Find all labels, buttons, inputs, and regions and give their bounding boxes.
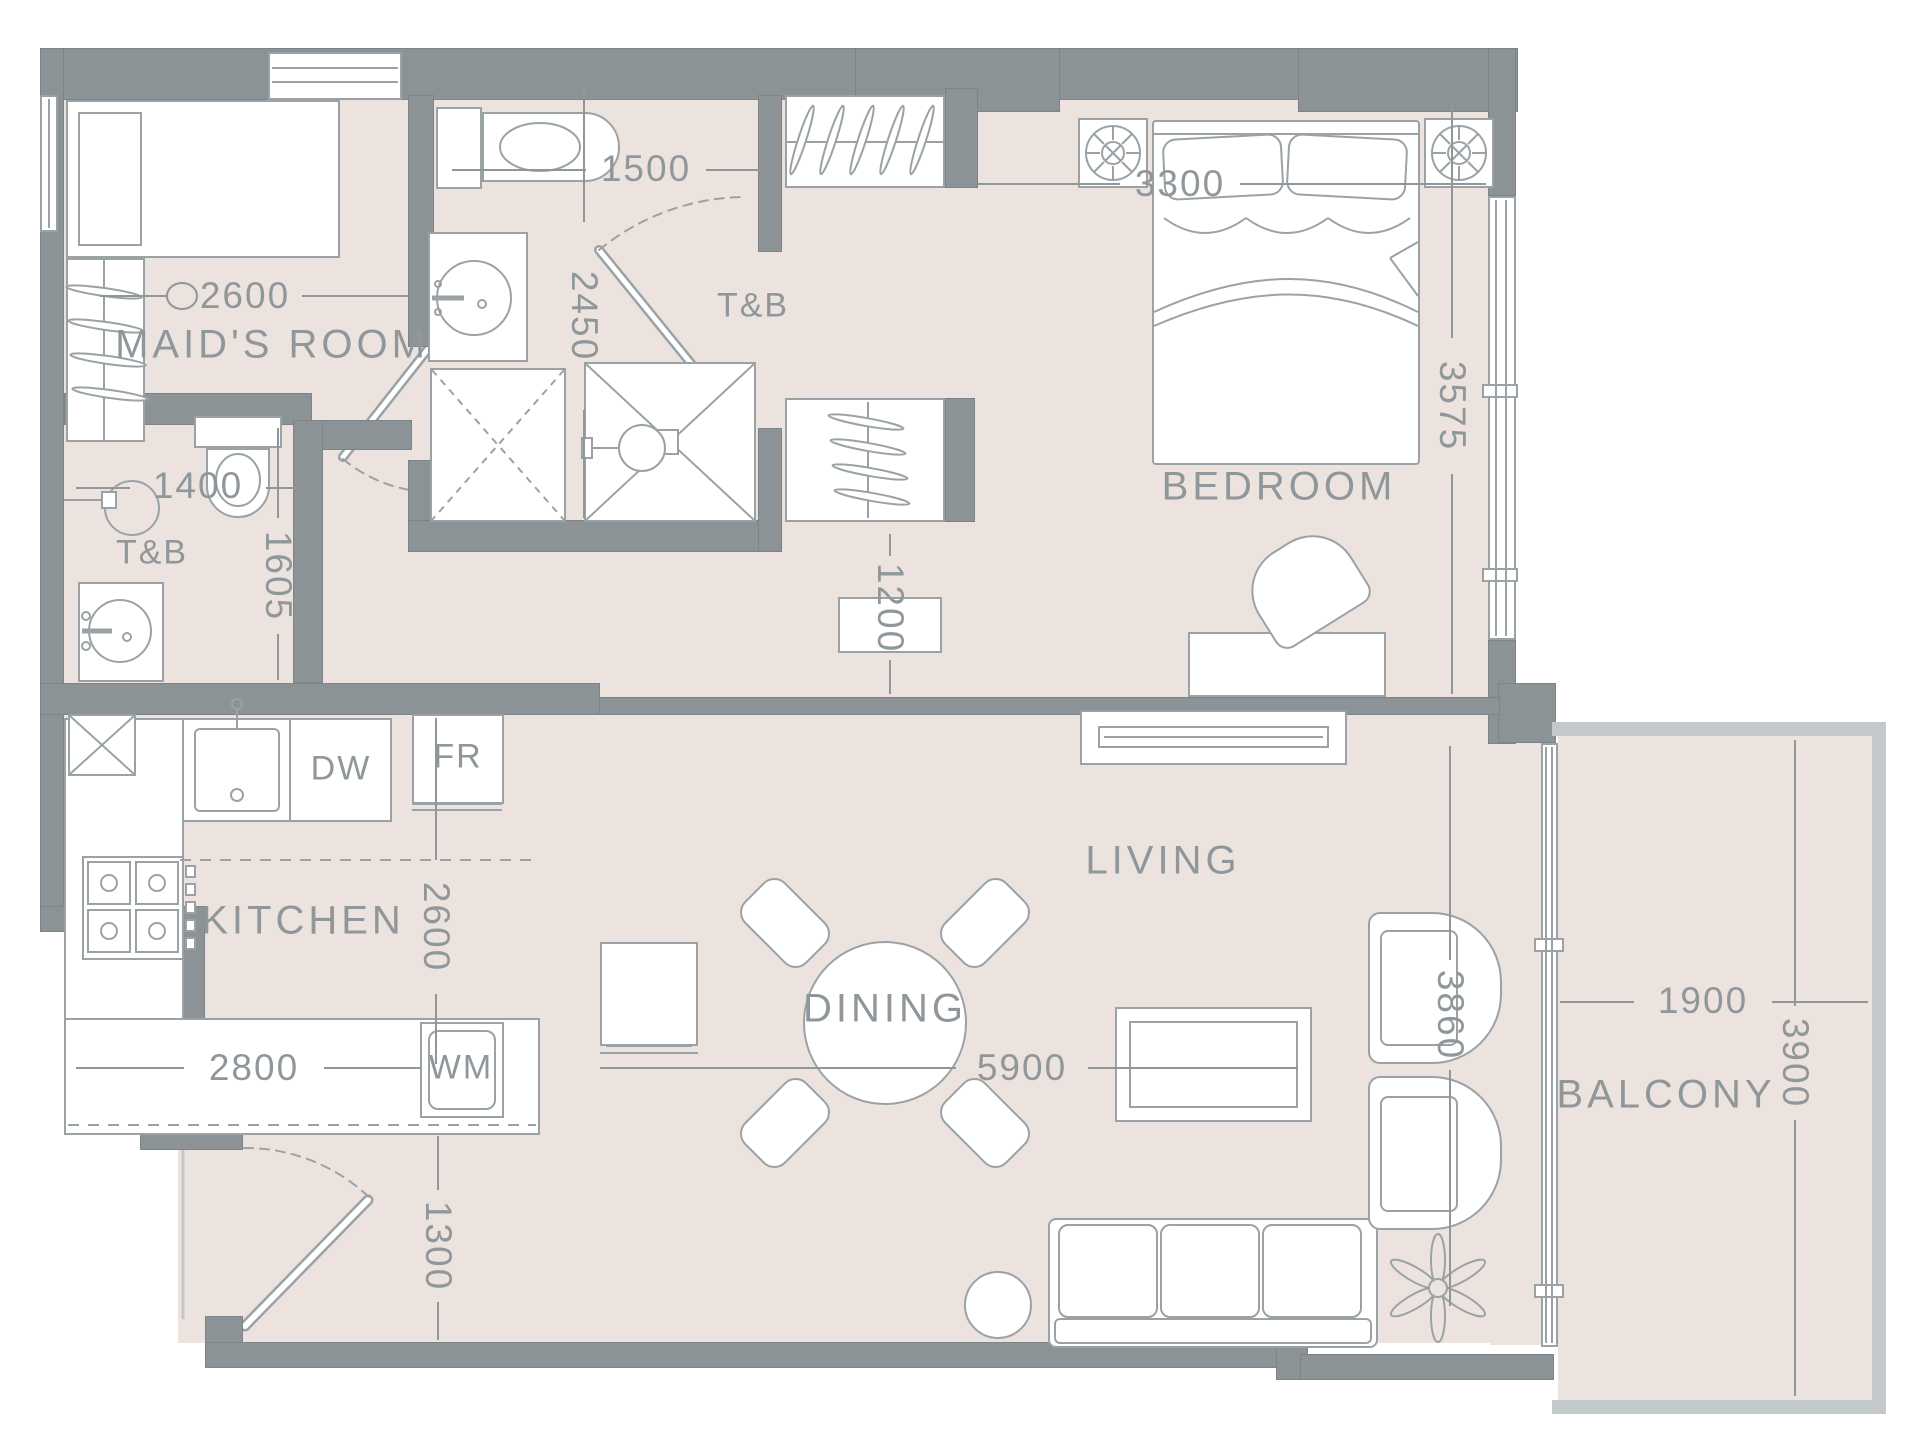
nightstand-right [1424, 118, 1494, 188]
dim-balcony-width: 1900 [1658, 980, 1748, 1022]
balcony-floor [1558, 736, 1872, 1400]
hall-closet [785, 95, 945, 188]
tb-center-shower [584, 362, 756, 522]
armchair-2-cushion [1380, 1096, 1458, 1212]
balcony-label: BALCONY [1556, 1073, 1775, 1118]
tb-center-duct [430, 368, 566, 522]
dim-bedroom-width: 3300 [1135, 163, 1225, 205]
maids-room-label: MAID'S ROOM [115, 323, 429, 368]
dim-tb-center-width: 1500 [601, 148, 691, 190]
balcony-wall-bottom [1552, 1400, 1886, 1414]
wall-closet-a-column [945, 88, 978, 188]
sofa-back [1054, 1318, 1372, 1344]
balcony-window-wall [1541, 743, 1558, 1347]
living-floor-strip [1490, 742, 1541, 1345]
tb-center-label: T&B [717, 287, 789, 326]
coffee-table-inner [1129, 1021, 1298, 1108]
wall-tb-center-right-lower [758, 428, 782, 552]
wall-bottom-right [1300, 1354, 1554, 1380]
dim-tb-left-depth: 1605 [257, 531, 299, 621]
sofa-cushion-3 [1262, 1224, 1362, 1318]
tb-left-label: T&B [116, 534, 188, 573]
wall-top-block-b [1298, 48, 1518, 112]
dim-maids-width: 2600 [200, 275, 290, 317]
kitchen-label: KITCHEN [201, 899, 405, 944]
sofa-cushion-1 [1058, 1224, 1158, 1318]
dining-label: DINING [803, 987, 967, 1032]
tb-center-sink [428, 232, 528, 362]
washing-machine-label: WM [429, 1049, 493, 1088]
balcony-window-transom-2 [1534, 1284, 1564, 1298]
side-table [964, 1271, 1032, 1339]
dim-bedroom-depth: 3575 [1431, 361, 1473, 451]
living-label: LIVING [1085, 839, 1240, 884]
tb-left-toilet-tank [194, 416, 282, 448]
floor-plan: MAID'S ROOM T&B T&B BEDROOM KITCHEN DINI… [0, 0, 1920, 1448]
wall-balcony-corner [1498, 683, 1556, 743]
dim-living-depth: 3860 [1429, 970, 1471, 1060]
wall-tb-center-bottom [408, 520, 782, 552]
maids-bed-pillow [78, 112, 142, 246]
wall-closet-b-column [945, 398, 975, 522]
fridge-label: FR [433, 738, 482, 777]
dining-cabinet [600, 942, 698, 1046]
balcony-wall-top [1552, 722, 1886, 736]
wall-tb-center-right-upper [758, 95, 782, 252]
bedroom-window-transom-2 [1482, 568, 1518, 582]
wall-kitchen-top [40, 683, 600, 715]
bedroom-label: BEDROOM [1162, 465, 1397, 510]
stove [82, 856, 184, 960]
kitchen-duct [68, 714, 136, 776]
balcony-wall-right [1872, 722, 1886, 1414]
tb-left-sink [78, 582, 164, 682]
dim-living-width: 5900 [977, 1047, 1067, 1089]
tb-center-toilet-tank [436, 107, 482, 189]
dim-balcony-depth: 3900 [1774, 1018, 1816, 1108]
sofa-cushion-2 [1160, 1224, 1260, 1318]
dishwasher-label: DW [311, 750, 372, 789]
tb-center-toilet-bowl [482, 112, 620, 182]
maids-window [268, 52, 402, 100]
wall-bedroom-living [592, 697, 1500, 715]
balcony-window-transom-1 [1534, 938, 1564, 952]
bedroom-closet [785, 398, 945, 522]
dim-tb-center-depth: 2450 [563, 271, 605, 361]
dim-hallway-width: 1200 [869, 563, 911, 653]
bedroom-window-transom-1 [1482, 384, 1518, 398]
dim-kitchen-width: 2800 [209, 1047, 299, 1089]
left-window [40, 95, 58, 232]
wall-top [40, 48, 1518, 100]
dim-entry-width: 1300 [417, 1201, 459, 1291]
tv [1098, 726, 1329, 748]
dim-kitchen-depth: 2600 [415, 882, 457, 972]
kitchen-sink [194, 728, 280, 812]
dim-tb-left-width: 1400 [153, 465, 243, 507]
bed-pillow-right [1285, 133, 1408, 201]
